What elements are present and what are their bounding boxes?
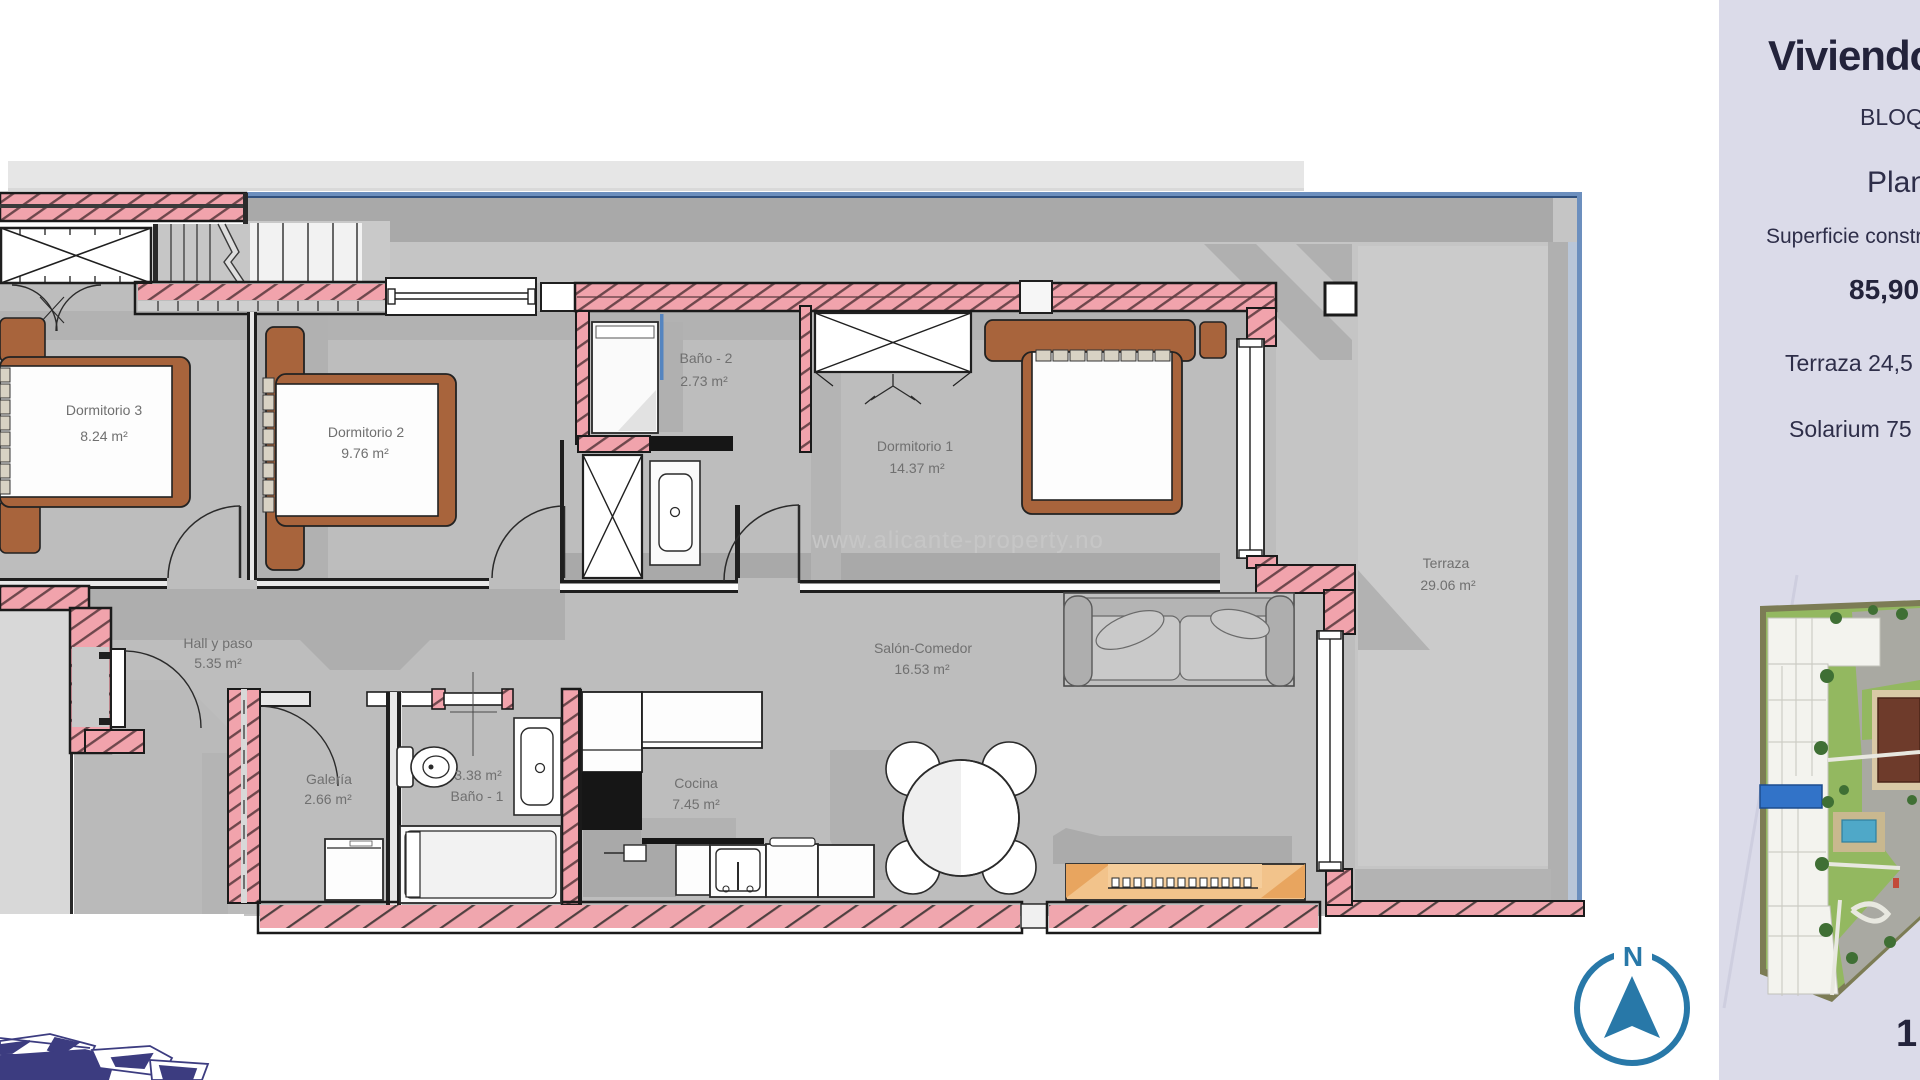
svg-text:Baño - 2: Baño - 2	[680, 350, 733, 366]
svg-text:Viviendo: Viviendo	[1768, 32, 1920, 79]
svg-text:Superficie construida: Superficie construida	[1766, 225, 1920, 248]
svg-text:Cocina: Cocina	[674, 775, 718, 791]
svg-text:29.06 m²: 29.06 m²	[1420, 577, 1476, 593]
svg-text:Hall y paso: Hall y paso	[183, 635, 252, 651]
svg-text:85,90 m: 85,90 m	[1849, 274, 1920, 305]
svg-text:9.76 m²: 9.76 m²	[341, 445, 389, 461]
svg-text:Solarium 75: Solarium 75	[1789, 416, 1912, 442]
svg-text:3.38 m²: 3.38 m²	[454, 767, 502, 783]
svg-text:14.37 m²: 14.37 m²	[889, 460, 945, 476]
svg-text:1: 1	[1896, 1013, 1917, 1055]
svg-text:Terraza: Terraza	[1423, 555, 1470, 571]
svg-text:Salón-Comedor: Salón-Comedor	[874, 640, 972, 656]
svg-text:2.73 m²: 2.73 m²	[680, 373, 728, 389]
svg-text:8.24 m²: 8.24 m²	[80, 428, 128, 444]
svg-text:2.66 m²: 2.66 m²	[304, 791, 352, 807]
svg-text:7.45 m²: 7.45 m²	[672, 796, 720, 812]
svg-text:www.alicante-property.no: www.alicante-property.no	[811, 527, 1104, 554]
svg-text:5.35 m²: 5.35 m²	[194, 655, 242, 671]
svg-text:Dormitorio 2: Dormitorio 2	[328, 424, 404, 440]
svg-text:N: N	[1623, 941, 1643, 972]
svg-text:16.53 m²: 16.53 m²	[894, 661, 950, 677]
svg-text:Planta: Planta	[1867, 166, 1920, 199]
svg-text:BLOQUE: BLOQUE	[1860, 104, 1920, 130]
svg-text:Baño - 1: Baño - 1	[451, 788, 504, 804]
svg-text:Dormitorio 3: Dormitorio 3	[66, 402, 142, 418]
svg-text:Dormitorio 1: Dormitorio 1	[877, 438, 953, 454]
svg-text:Terraza 24,5: Terraza 24,5	[1785, 350, 1913, 376]
svg-text:Galería: Galería	[306, 771, 352, 787]
